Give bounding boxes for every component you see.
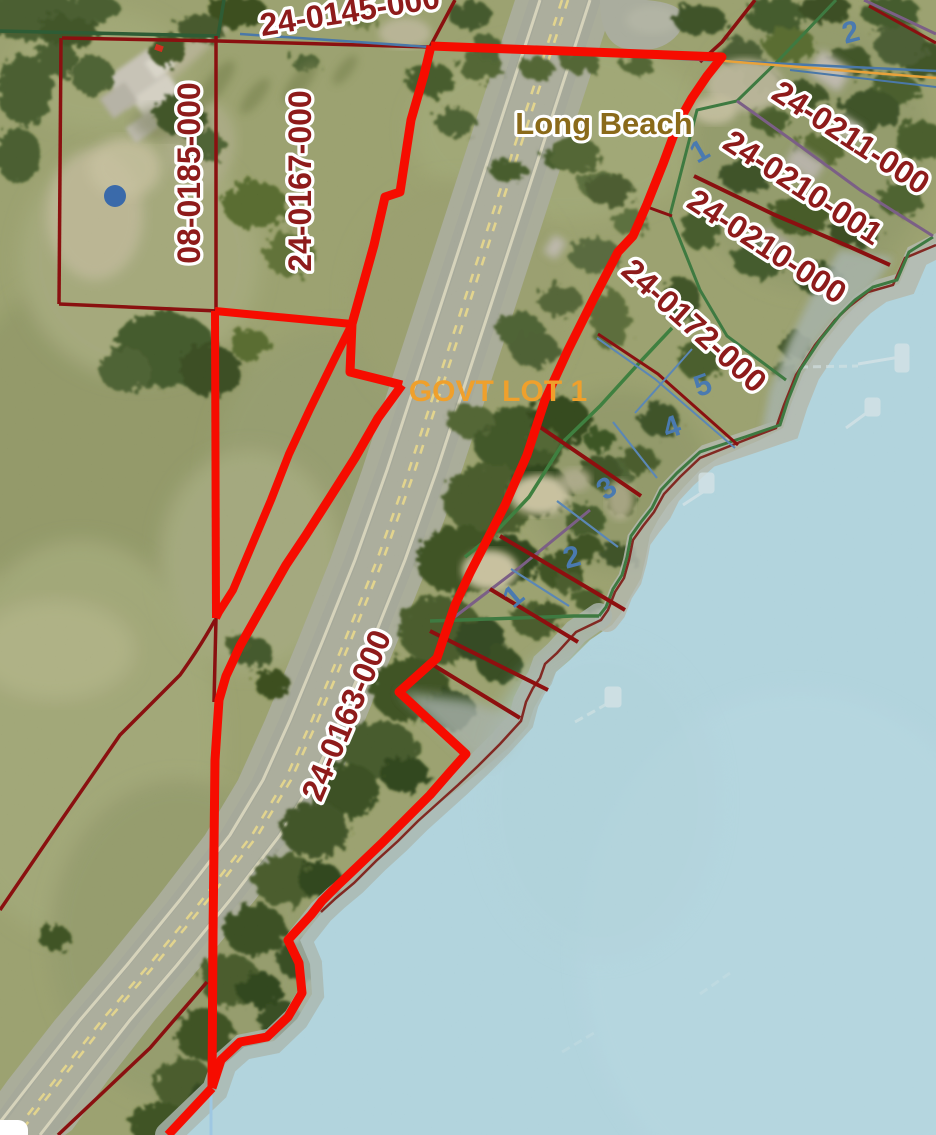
svg-text:GOVT LOT 1: GOVT LOT 1 <box>409 375 587 408</box>
svg-text:08-0185-000: 08-0185-000 <box>171 82 207 263</box>
svg-text:Long Beach: Long Beach <box>515 106 692 141</box>
svg-text:24-0167-000: 24-0167-000 <box>282 90 318 271</box>
